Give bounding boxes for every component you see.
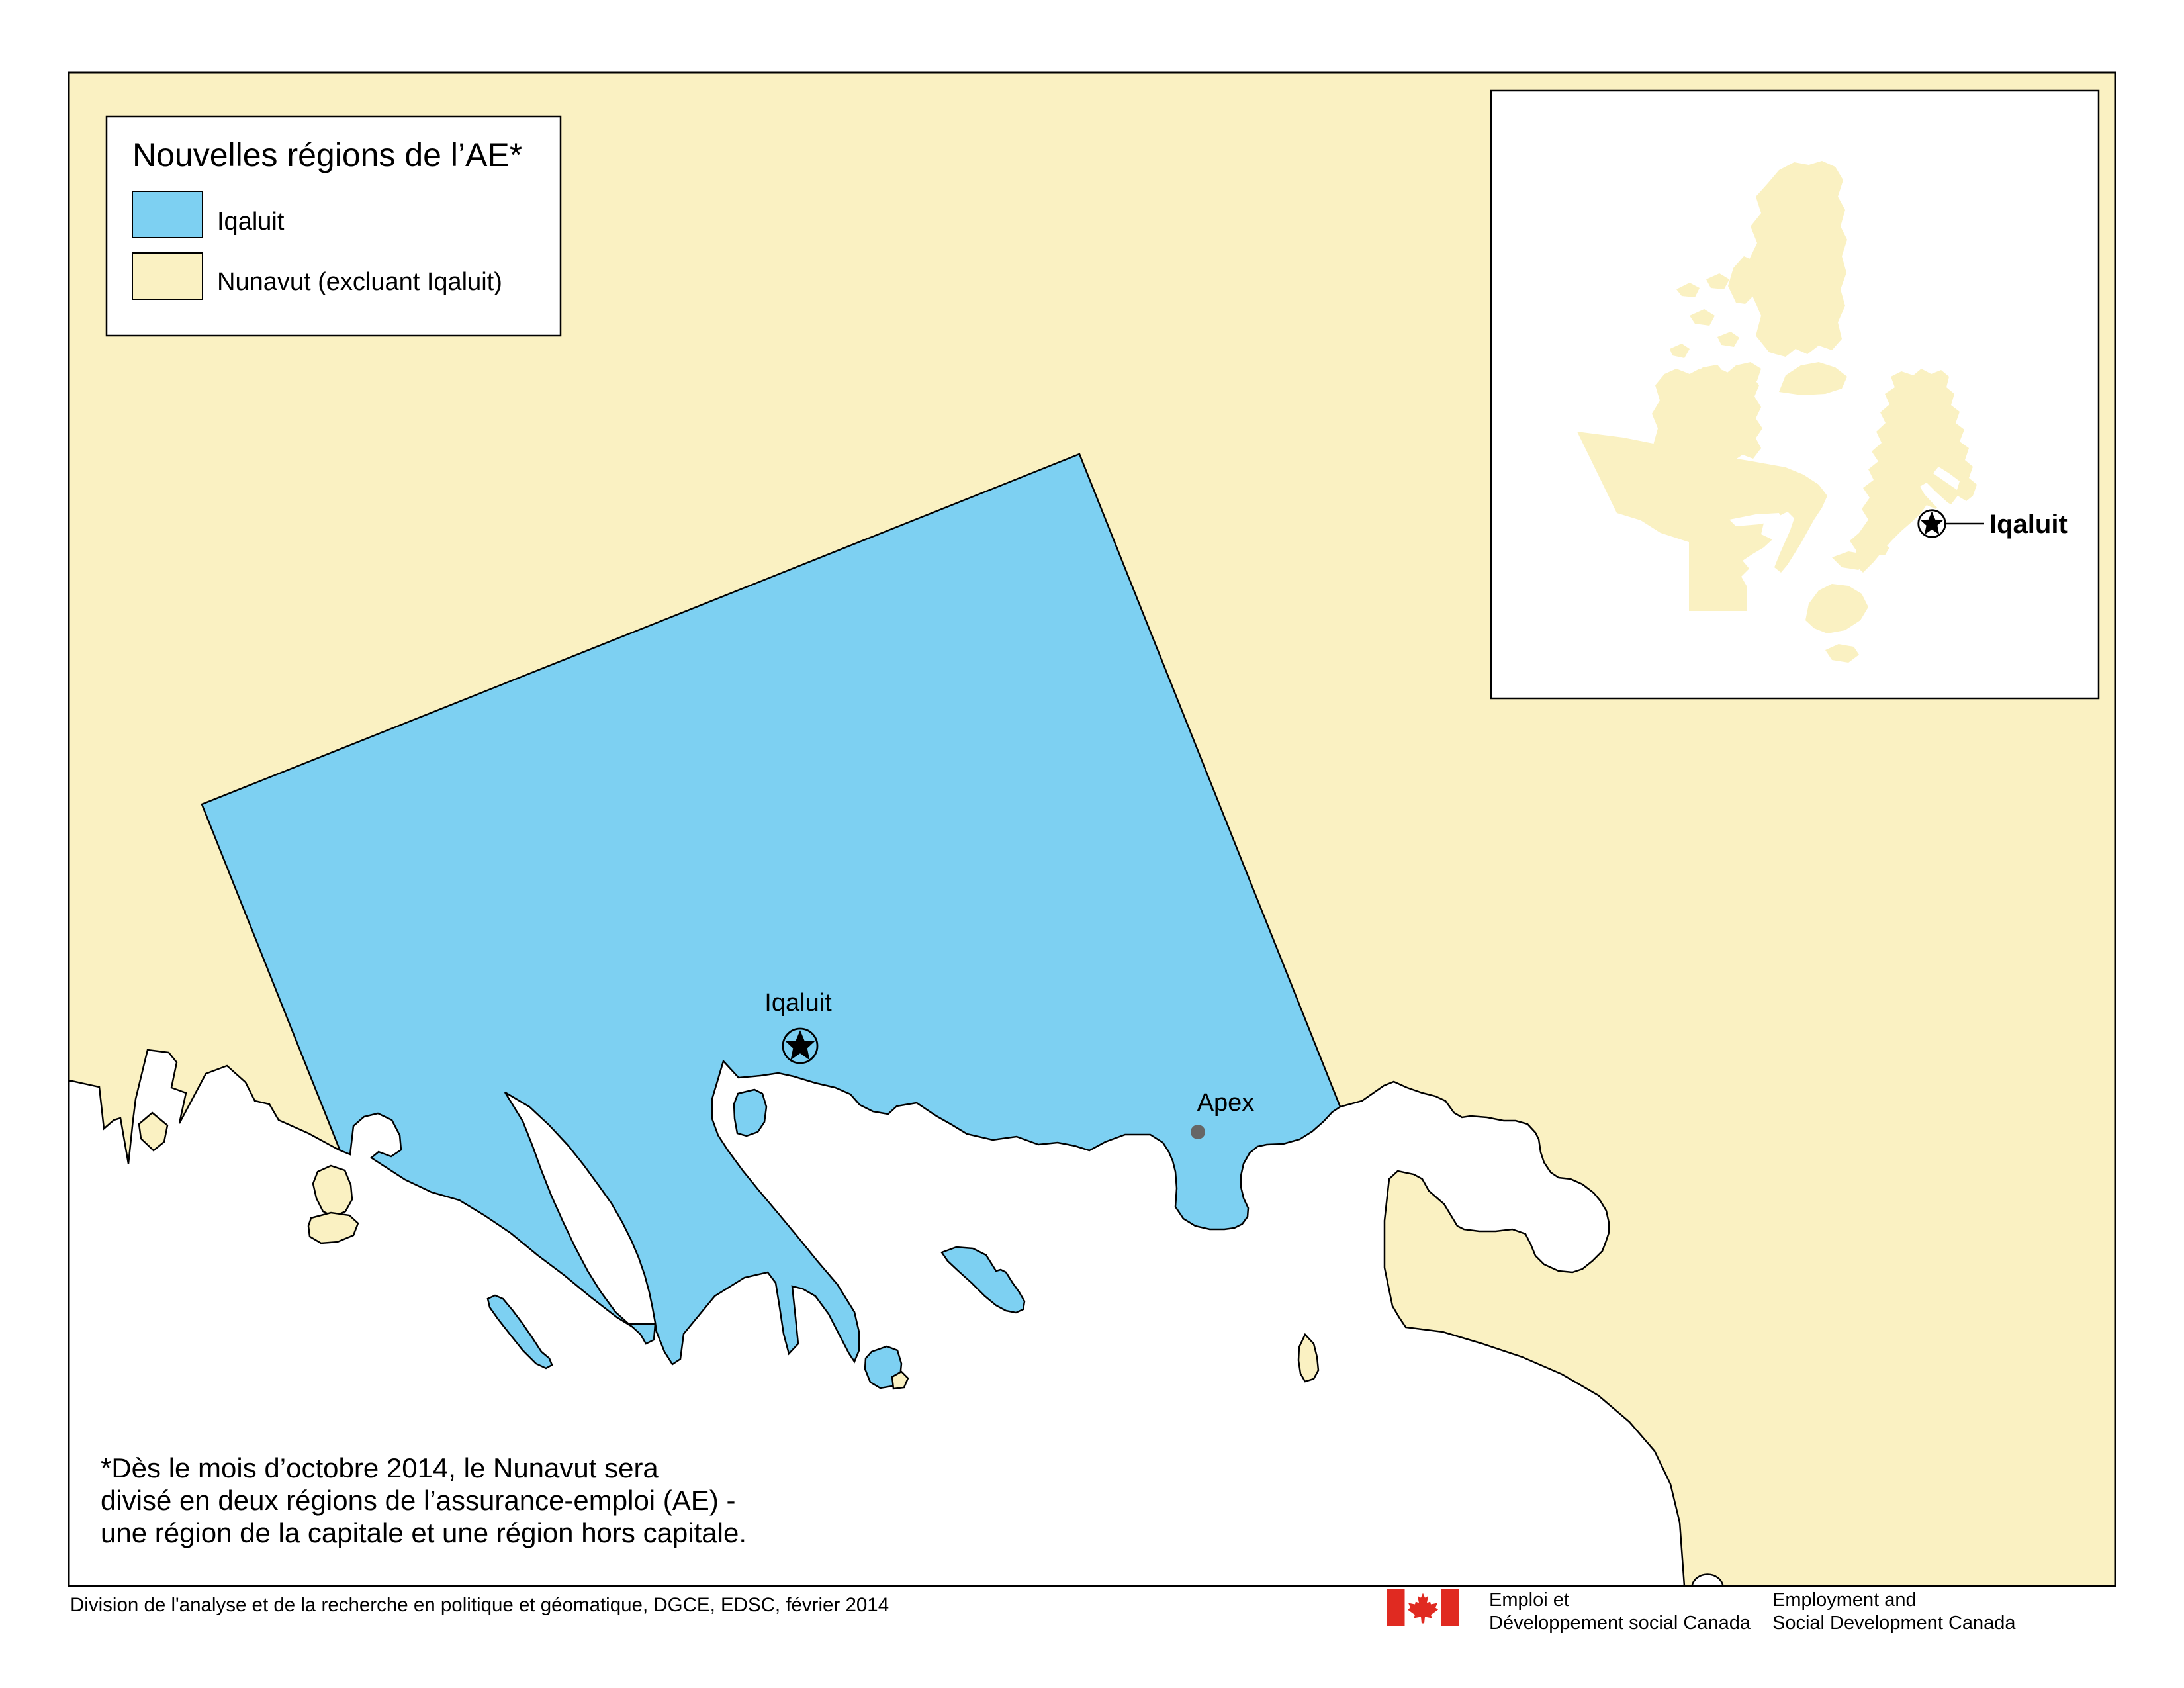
svg-text:Développement social Canada: Développement social Canada: [1489, 1613, 1751, 1634]
svg-text:*Dès le mois d’octobre 2014, l: *Dès le mois d’octobre 2014, le Nunavut …: [101, 1452, 659, 1483]
svg-text:Apex: Apex: [1197, 1089, 1255, 1117]
svg-text:Iqaluit: Iqaluit: [764, 989, 832, 1017]
svg-text:divisé en deux régions de l’as: divisé en deux régions de l’assurance-em…: [101, 1485, 735, 1516]
svg-text:Emploi et: Emploi et: [1489, 1589, 1569, 1611]
svg-text:Nunavut (excluant Iqaluit): Nunavut (excluant Iqaluit): [217, 268, 502, 296]
svg-text:Employment and: Employment and: [1772, 1589, 1917, 1611]
svg-text:une région de la capitale et u: une région de la capitale et une région …: [101, 1517, 747, 1548]
svg-text:Social Development Canada: Social Development Canada: [1772, 1613, 2016, 1634]
svg-text:Nouvelles régions de l’AE*: Nouvelles régions de l’AE*: [132, 136, 522, 173]
svg-text:Division de l'analyse et de la: Division de l'analyse et de la recherche…: [70, 1594, 889, 1616]
svg-text:Iqaluit: Iqaluit: [217, 208, 285, 236]
svg-text:Iqaluit: Iqaluit: [1989, 510, 2068, 539]
